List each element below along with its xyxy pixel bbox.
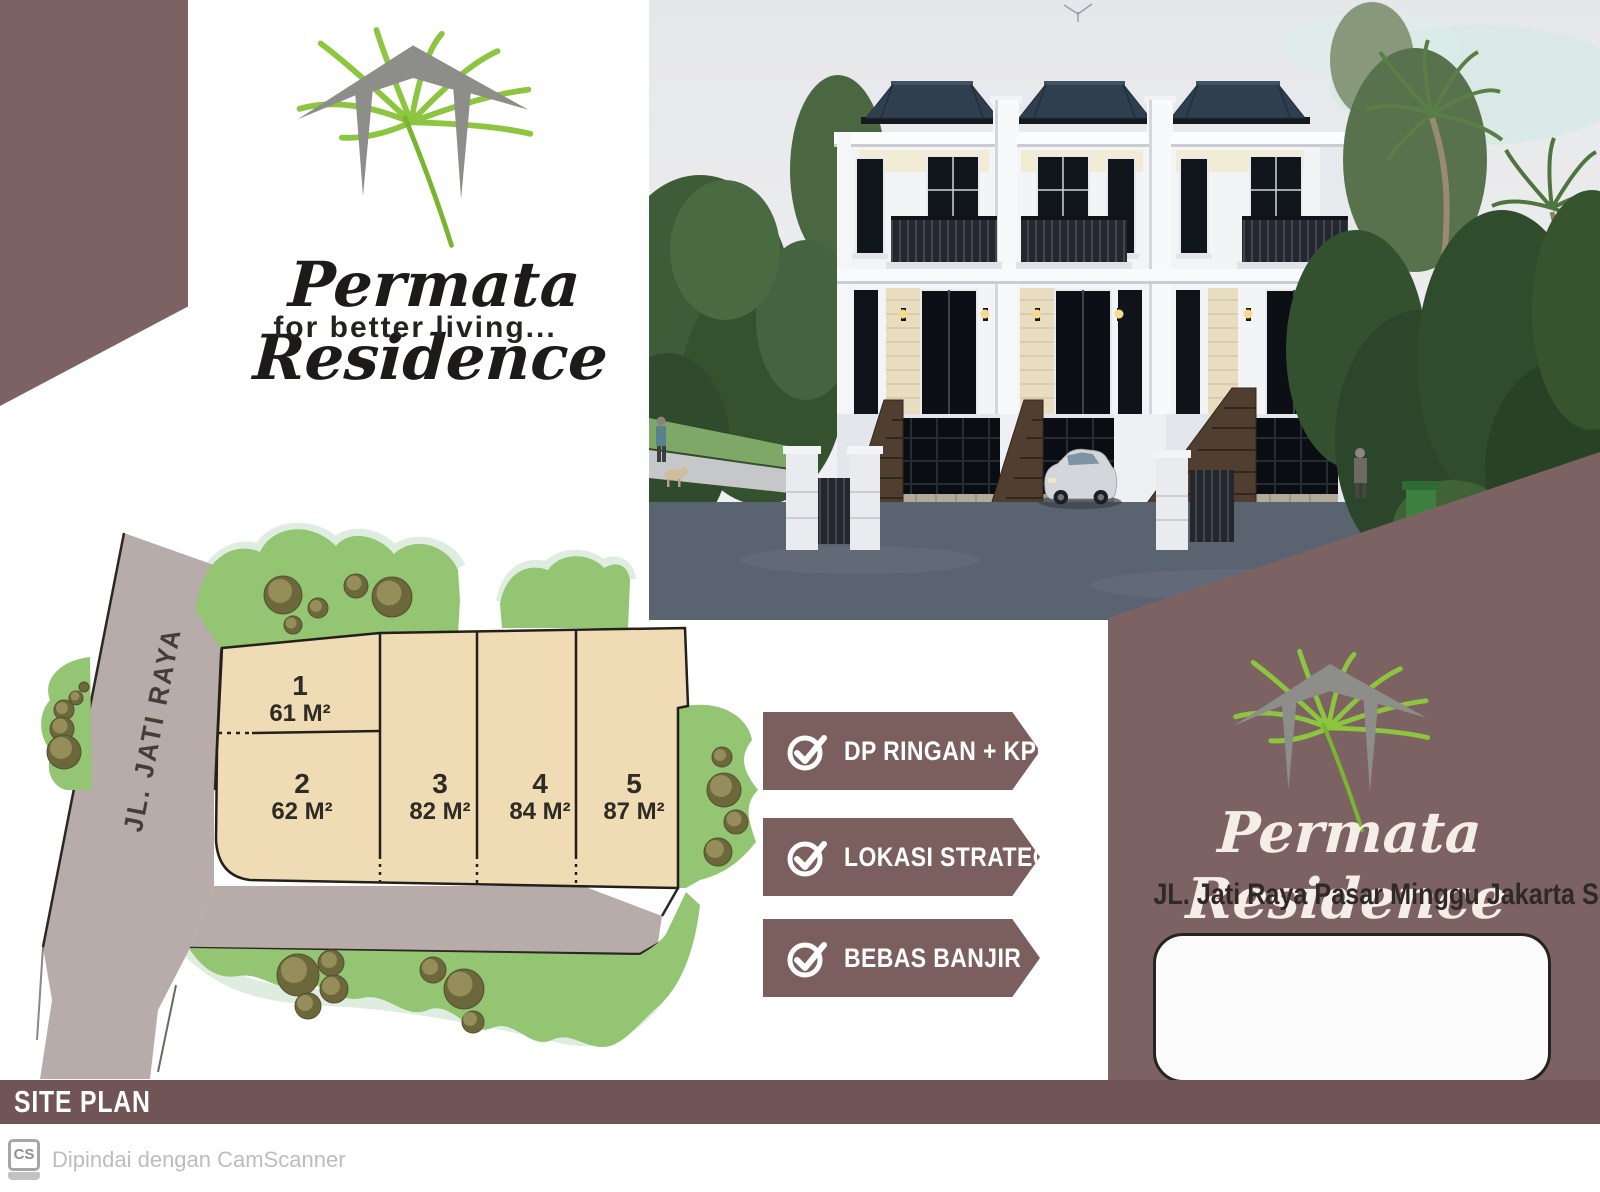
feature-label: LOKASI STRATEGIS — [844, 842, 1074, 873]
lot-5: 587 M² — [564, 768, 704, 826]
address-text: JL. Jati Raya Pasar Minggu Jakarta Selat… — [1153, 878, 1600, 912]
lot-2: 262 M² — [232, 768, 372, 826]
check-circle-icon — [785, 834, 831, 880]
brand-tagline: for better living... — [270, 311, 560, 345]
lot-1: 161 M² — [230, 670, 370, 728]
camscanner-icon: CS — [8, 1139, 42, 1181]
panel-brand-name: Permata Residence — [1115, 800, 1582, 932]
site-plan-bar — [0, 1080, 1600, 1124]
feature-ribbon-dp-ringan: DP RINGAN + KPR — [763, 712, 1040, 790]
check-circle-icon — [785, 728, 831, 774]
balcony-railing — [886, 216, 1353, 269]
camscanner-logo-letters: CS — [8, 1139, 40, 1171]
roof — [861, 81, 1310, 124]
flyer-page: 161 M² 262 M² 382 M² 484 M² 587 M² JL. J… — [0, 0, 1600, 1192]
feature-label: BEBAS BANJIR — [844, 943, 1021, 974]
camscanner-text: Dipindai dengan CamScanner — [52, 1147, 346, 1173]
feature-label: DP RINGAN + KPR — [844, 736, 1053, 767]
check-circle-icon — [785, 935, 831, 981]
corner-accent-shape — [0, 0, 188, 406]
contact-box — [1153, 933, 1551, 1083]
feature-ribbon-bebas-banjir: BEBAS BANJIR — [763, 919, 1040, 997]
panel-address: JL. Jati Raya Pasar Minggu Jakarta Selat… — [1104, 878, 1572, 912]
lots — [216, 628, 688, 888]
feature-ribbon-lokasi: LOKASI STRATEGIS — [763, 818, 1040, 896]
camscanner-logo-base — [8, 1172, 40, 1180]
brand-logo-icon — [288, 26, 538, 257]
site-plan-title: SITE PLAN — [14, 1080, 151, 1124]
pedestrian — [656, 417, 666, 463]
